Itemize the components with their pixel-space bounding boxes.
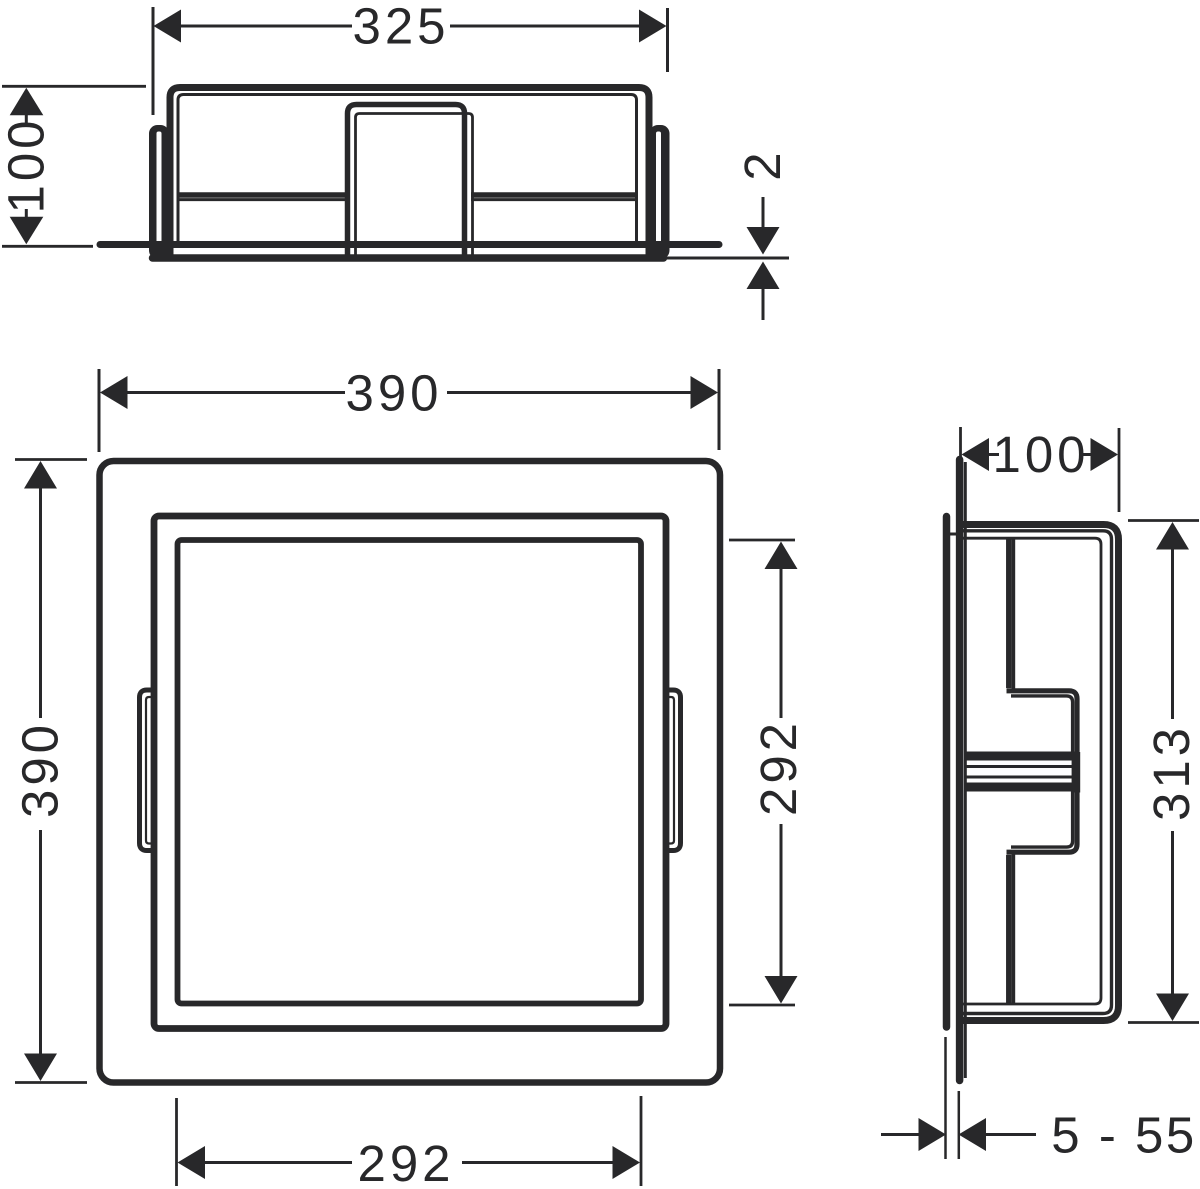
svg-text:390: 390 [12, 721, 69, 818]
svg-text:100: 100 [0, 116, 55, 213]
svg-text:292: 292 [357, 1135, 454, 1189]
svg-text:2: 2 [734, 148, 791, 180]
svg-text:390: 390 [345, 365, 442, 422]
svg-text:325: 325 [352, 0, 449, 55]
svg-text:100: 100 [992, 426, 1089, 483]
svg-text:292: 292 [750, 719, 807, 816]
svg-text:5 - 55: 5 - 55 [1051, 1107, 1196, 1164]
svg-text:313: 313 [1143, 724, 1200, 821]
